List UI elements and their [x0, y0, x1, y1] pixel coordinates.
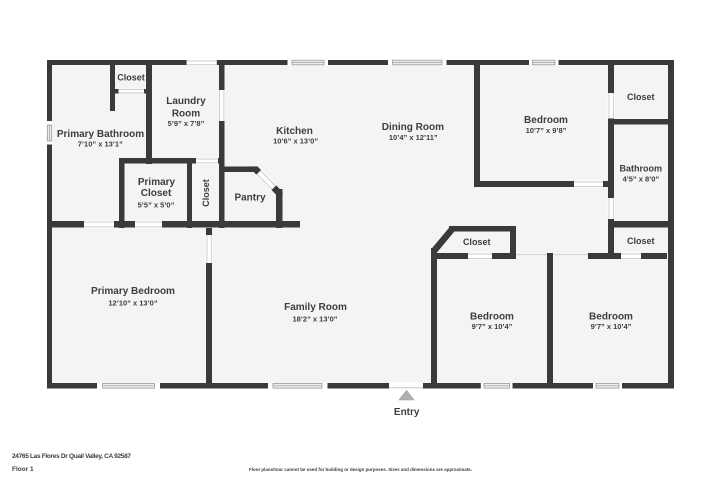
svg-text:Primary Bathroom: Primary Bathroom — [57, 129, 144, 140]
svg-text:Bedroom: Bedroom — [524, 115, 568, 126]
svg-text:Kitchen: Kitchen — [276, 126, 313, 137]
svg-text:18’2” x 13’0”: 18’2” x 13’0” — [292, 315, 337, 324]
svg-text:10’6” x 13’0”: 10’6” x 13’0” — [273, 137, 318, 146]
svg-text:Primary: Primary — [138, 177, 176, 188]
svg-text:4’5” x 8’0”: 4’5” x 8’0” — [622, 174, 659, 183]
svg-text:Closet: Closet — [463, 237, 491, 247]
svg-text:12’10” x 13’0”: 12’10” x 13’0” — [108, 299, 157, 308]
svg-text:Closet: Closet — [141, 188, 172, 199]
svg-text:5’9” x 7’8”: 5’9” x 7’8” — [168, 119, 205, 128]
svg-text:5’5” x 5’0”: 5’5” x 5’0” — [138, 201, 175, 210]
svg-text:Primary Bedroom: Primary Bedroom — [91, 286, 175, 297]
svg-text:Closet: Closet — [627, 236, 655, 246]
svg-text:Closet: Closet — [627, 92, 655, 102]
svg-text:Laundry: Laundry — [166, 96, 206, 107]
svg-text:Room: Room — [172, 108, 200, 119]
svg-text:Closet: Closet — [201, 179, 211, 207]
svg-text:Bedroom: Bedroom — [589, 312, 633, 323]
svg-text:Bedroom: Bedroom — [470, 312, 514, 323]
svg-text:Floor plans/tour cannot be use: Floor plans/tour cannot be used for buil… — [249, 467, 473, 473]
svg-text:7’10” x 13’1”: 7’10” x 13’1” — [78, 139, 123, 148]
svg-text:Dining Room: Dining Room — [382, 122, 444, 133]
svg-text:10’7” x 9’8”: 10’7” x 9’8” — [526, 126, 567, 135]
svg-text:Bathroom: Bathroom — [620, 163, 663, 173]
svg-text:9’7” x 10’4”: 9’7” x 10’4” — [472, 322, 513, 331]
svg-text:24765 Las Flores Dr Quail Vall: 24765 Las Flores Dr Quail Valley, CA 925… — [12, 453, 131, 460]
svg-text:Floor 1: Floor 1 — [12, 466, 34, 473]
svg-text:9’7” x 10’4”: 9’7” x 10’4” — [591, 322, 632, 331]
svg-text:10’4” x 12’11”: 10’4” x 12’11” — [389, 133, 438, 142]
svg-text:Entry: Entry — [394, 407, 420, 418]
svg-text:Closet: Closet — [117, 73, 145, 83]
svg-text:Family Room: Family Room — [284, 302, 347, 313]
svg-text:Pantry: Pantry — [234, 193, 266, 204]
